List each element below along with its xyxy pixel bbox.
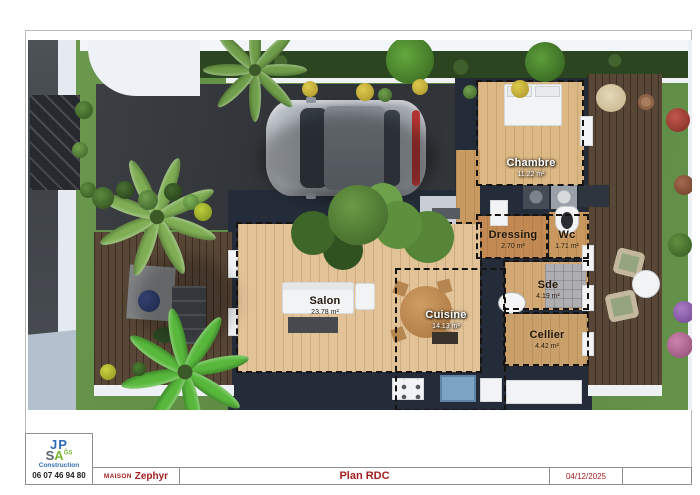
bush-yellow bbox=[412, 79, 428, 95]
bush-green bbox=[75, 101, 93, 119]
project-name: Zephyr bbox=[135, 471, 168, 482]
plan-render: Chambre 11.22 m² Dressing 2.70 m² Wc 1.7… bbox=[28, 40, 692, 410]
sheet-date: 04/12/2025 bbox=[566, 472, 606, 481]
cabinet bbox=[579, 185, 609, 207]
flower-bush-rust bbox=[674, 175, 692, 195]
crosswalk-slab bbox=[28, 330, 76, 410]
bush-yellow bbox=[100, 364, 116, 380]
logo-subtitle: Construction bbox=[39, 463, 79, 470]
bush-green bbox=[72, 142, 88, 158]
bush-yellow bbox=[511, 80, 529, 98]
bush-green bbox=[164, 183, 182, 201]
room-label-cellier: Cellier 4.42 m² bbox=[529, 330, 564, 350]
room-area: 4.19 m² bbox=[536, 293, 560, 300]
bush-green bbox=[138, 190, 158, 210]
garden-table bbox=[632, 270, 660, 298]
room-label-wc: Wc 1.71 m² bbox=[555, 230, 579, 250]
sheet-title-cell: Plan RDC bbox=[180, 467, 550, 485]
room-name: Cellier bbox=[529, 330, 564, 342]
bush-yellow bbox=[356, 83, 374, 101]
palm-shadow bbox=[136, 255, 236, 345]
hedge-tree bbox=[525, 42, 565, 82]
car-mirror bbox=[306, 97, 316, 103]
flower-bush-purple bbox=[673, 301, 692, 323]
wall-bottom-right bbox=[588, 385, 662, 396]
bush-green bbox=[116, 181, 134, 199]
room-name: Sde bbox=[536, 280, 560, 292]
palm-core bbox=[249, 64, 261, 76]
project-name-cell: MAISON Zephyr bbox=[93, 467, 180, 485]
room-label-salon: Salon 23.78 m² bbox=[310, 296, 341, 316]
empty-cell bbox=[623, 467, 692, 485]
round-rug bbox=[596, 84, 626, 112]
room-area: 14.13 m² bbox=[425, 323, 466, 330]
logo-suffix: ĜS bbox=[64, 451, 73, 457]
doormat bbox=[432, 208, 460, 219]
room-name: Wc bbox=[555, 230, 579, 242]
room-area: 1.71 m² bbox=[555, 243, 579, 250]
room-label-chambre: Chambre 11.22 m² bbox=[506, 158, 555, 178]
room-label-dressing: Dressing 2.70 m² bbox=[489, 230, 538, 250]
title-bar: MAISON Zephyr Plan RDC 04/12/2025 bbox=[93, 467, 692, 485]
project-label: MAISON bbox=[104, 473, 132, 480]
room-label-sde: Sde 4.19 m² bbox=[536, 280, 560, 300]
logo-letter-a: A bbox=[54, 448, 63, 463]
bush-green bbox=[132, 362, 146, 376]
road-hatch-zone bbox=[30, 95, 80, 190]
bush-yellowgreen bbox=[194, 203, 212, 221]
bush-green bbox=[668, 233, 692, 257]
flower-bush-red bbox=[666, 108, 690, 132]
bush-green bbox=[378, 88, 392, 102]
room-label-cuisine: Cuisine 14.13 m² bbox=[425, 310, 466, 330]
room-area: 23.78 m² bbox=[310, 309, 341, 316]
bush-green bbox=[463, 85, 477, 99]
bush-green bbox=[92, 187, 114, 209]
room-area: 2.70 m² bbox=[489, 243, 538, 250]
room-name: Chambre bbox=[506, 158, 555, 170]
logo-letter-s: S bbox=[46, 448, 55, 463]
logo-phone: 06 07 46 94 80 bbox=[32, 472, 85, 480]
room-name: Salon bbox=[310, 296, 341, 308]
outline-cuisine bbox=[395, 268, 506, 410]
room-area: 11.22 m² bbox=[506, 171, 555, 178]
bush-yellow bbox=[302, 81, 318, 97]
company-logo: JP SAĜS Construction 06 07 46 94 80 bbox=[25, 433, 93, 485]
logo-sa: SAĜS bbox=[46, 449, 73, 462]
cellier-counter bbox=[506, 380, 582, 404]
sheet-title: Plan RDC bbox=[339, 470, 389, 482]
room-name: Cuisine bbox=[425, 310, 466, 322]
room-area: 4.42 m² bbox=[529, 343, 564, 350]
flower-bush-pink bbox=[667, 332, 692, 358]
room-name: Dressing bbox=[489, 230, 538, 242]
washing-machine bbox=[523, 185, 549, 209]
terrace-right bbox=[588, 74, 662, 388]
tree-canopy bbox=[328, 185, 388, 245]
date-cell: 04/12/2025 bbox=[550, 467, 623, 485]
plan-sheet: Chambre 11.22 m² Dressing 2.70 m² Wc 1.7… bbox=[0, 0, 700, 495]
wood-stump bbox=[638, 94, 654, 110]
